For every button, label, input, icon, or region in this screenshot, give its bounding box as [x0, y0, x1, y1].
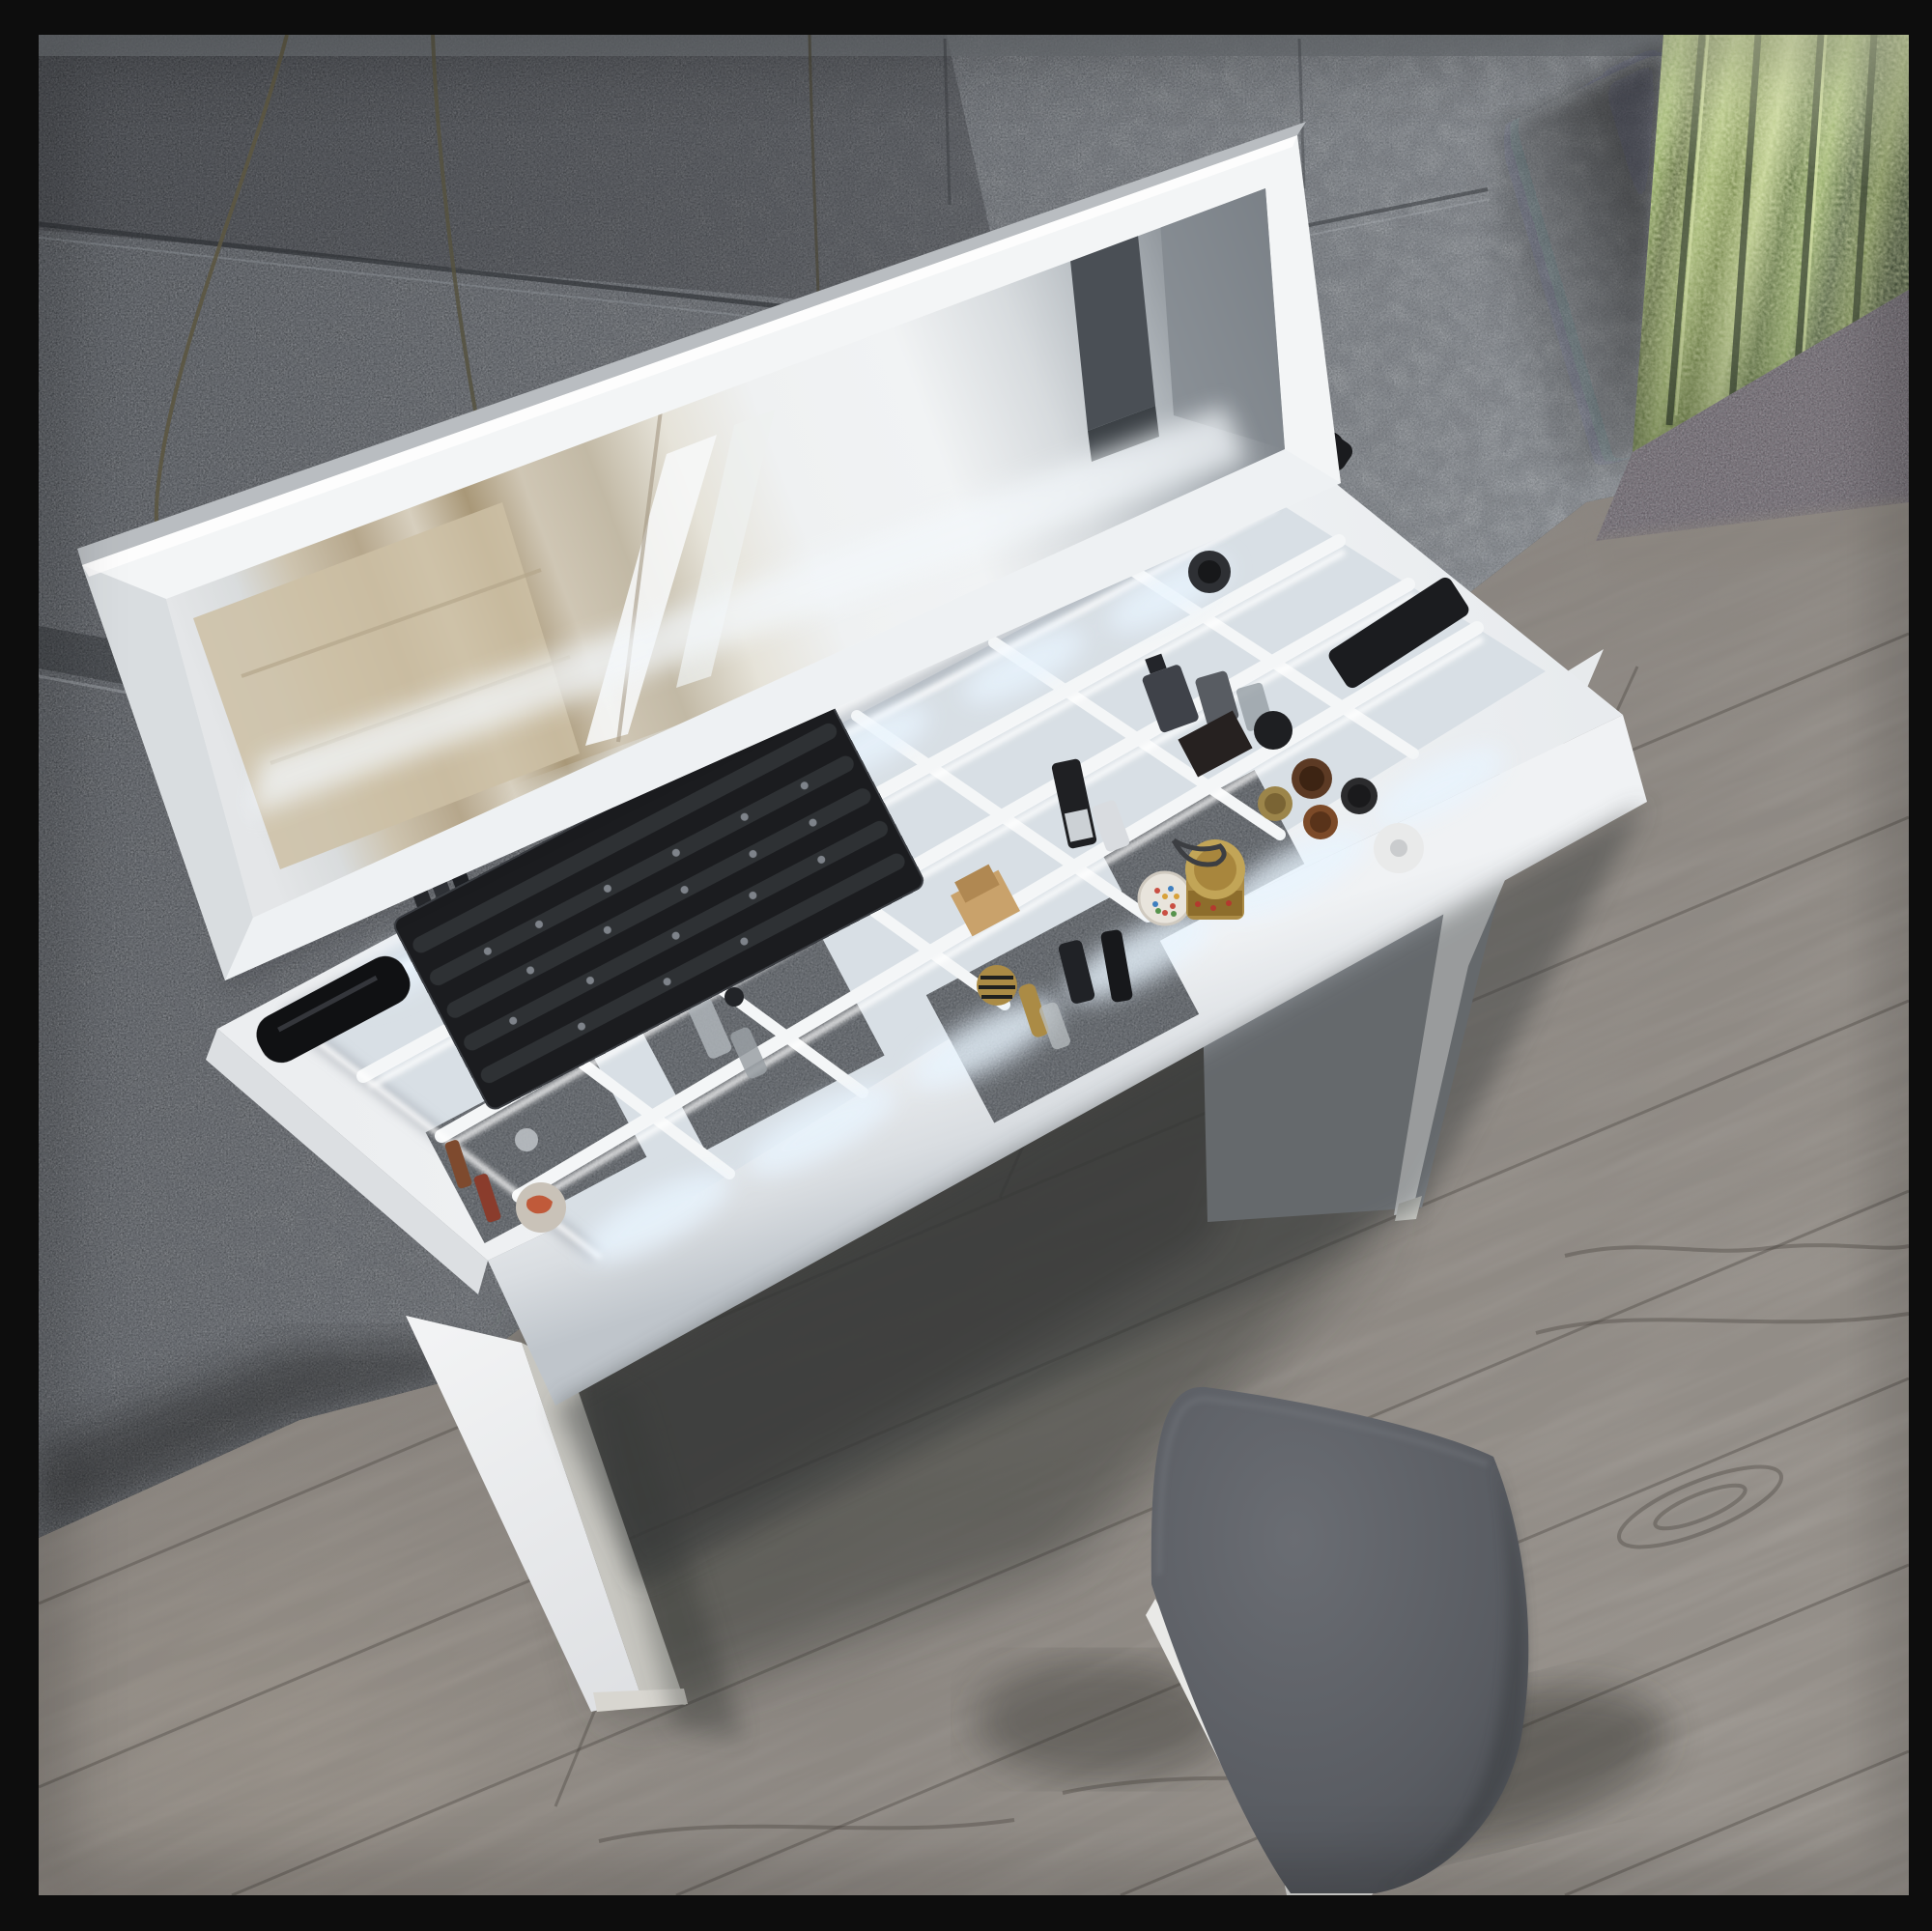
photo-scene — [0, 0, 1932, 1931]
product-photo — [0, 0, 1932, 1931]
photo-content — [0, 28, 1932, 1931]
trinket-plate — [1139, 872, 1191, 924]
gold-jar — [1185, 839, 1245, 920]
black-jar — [1254, 711, 1293, 750]
frame-bottom — [0, 1895, 1932, 1931]
frame-top — [0, 0, 1932, 35]
white-jar-lid — [1390, 839, 1407, 857]
frame-right — [1909, 0, 1932, 1931]
frame-left — [0, 0, 39, 1931]
round-tin-lid — [1198, 560, 1221, 583]
